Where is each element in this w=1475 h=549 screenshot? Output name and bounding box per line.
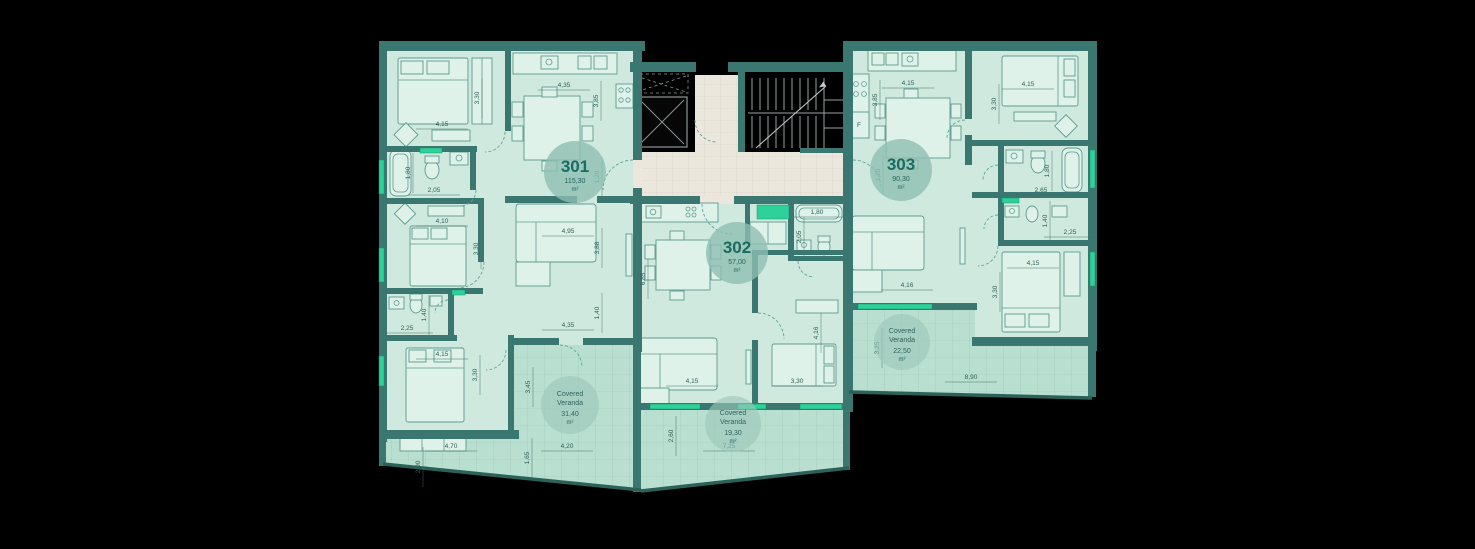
- dimension-label: 4,35: [558, 82, 571, 89]
- veranda-subtitle: Veranda: [557, 400, 583, 407]
- dimension-label: 4,15: [436, 121, 449, 128]
- apartment-area: 90,30: [892, 176, 910, 183]
- dimension-label: 3,88: [594, 241, 601, 254]
- fridge-label: F: [857, 122, 861, 129]
- veranda-badge-302: Covered Veranda 19,30 m²: [705, 396, 761, 452]
- dimension-label: 4,20: [561, 443, 574, 450]
- veranda-area: 31,40: [561, 411, 579, 418]
- dimension-label: 3,30: [473, 242, 480, 255]
- dimension-label: 3,30: [472, 368, 479, 381]
- apartment-number: 302: [723, 238, 751, 257]
- dimension-label: 2,25: [1064, 229, 1077, 236]
- veranda-badge-301: Covered Veranda 31,40 m²: [541, 376, 599, 434]
- apartment-area: 115,30: [565, 178, 586, 185]
- veranda-subtitle: Veranda: [720, 419, 746, 426]
- apartment-badge-303[interactable]: 303 90,30 m²: [870, 139, 932, 201]
- veranda-title: Covered: [557, 391, 584, 398]
- dimension-label: 3,45: [525, 380, 532, 393]
- dimension-label: 1,65: [524, 451, 531, 464]
- dimension-label: 4,10: [436, 218, 449, 225]
- dimension-label: 2,05: [428, 187, 441, 194]
- floorplan-svg: 4,153,304,353,851,802,051,204,103,304,95…: [0, 0, 1475, 549]
- veranda-badge-303: Covered Veranda 22,50 m²: [874, 314, 930, 370]
- dimension-label: 4,15: [686, 378, 699, 385]
- veranda-title: Covered: [720, 410, 747, 417]
- dimension-label: 4,15: [902, 80, 915, 87]
- apartment-number: 303: [887, 155, 915, 174]
- dimension-label: 3,30: [992, 285, 999, 298]
- dimension-label: 4,15: [1027, 260, 1040, 267]
- dimension-label: 3,30: [474, 91, 481, 104]
- dimension-label: 4,70: [445, 443, 458, 450]
- veranda-area-unit: m²: [899, 357, 906, 363]
- dimension-label: 2,60: [668, 429, 675, 442]
- dimension-label: 3,30: [991, 97, 998, 110]
- floorplan-canvas: 4,153,304,353,851,802,051,204,103,304,95…: [0, 0, 1475, 549]
- veranda-area: 19,30: [724, 430, 742, 437]
- veranda-title: Covered: [889, 328, 916, 335]
- veranda-area: 22,50: [893, 348, 911, 355]
- apartment-number: 301: [561, 157, 589, 176]
- dimension-label: 4,15: [436, 351, 449, 358]
- apartment-area-unit: m²: [734, 268, 741, 274]
- dimension-label: 4,16: [901, 282, 914, 289]
- dimension-label: 8,90: [965, 374, 978, 381]
- dimension-label: 1,40: [421, 308, 428, 321]
- dimension-label: 1,80: [811, 209, 824, 216]
- dimension-label: 1,40: [1042, 214, 1049, 227]
- dimension-label: 4,95: [562, 228, 575, 235]
- dimension-label: 1,80: [1044, 164, 1051, 177]
- dimension-label: 1,80: [405, 166, 412, 179]
- apartment-badge-301[interactable]: 301 115,30 m²: [544, 141, 606, 203]
- dimension-label: 3,30: [791, 378, 804, 385]
- dimension-label: 4,15: [1022, 81, 1035, 88]
- dimension-label: 2,05: [796, 230, 803, 243]
- dimension-label: 2,00: [415, 460, 422, 473]
- apartment-area-unit: m²: [898, 185, 905, 191]
- dimension-label: 2,25: [401, 325, 414, 332]
- veranda-area-unit: m²: [730, 439, 737, 445]
- apartment-badge-302[interactable]: 302 57,00 m²: [706, 222, 768, 284]
- dimension-label: 3,85: [872, 93, 879, 106]
- dimension-label: 6,85: [640, 272, 647, 285]
- dimension-label: 3,85: [593, 94, 600, 107]
- apartment-area-unit: m²: [572, 187, 579, 193]
- dimension-label: 4,16: [813, 326, 820, 339]
- veranda-area-unit: m²: [567, 420, 574, 426]
- veranda-subtitle: Veranda: [889, 337, 915, 344]
- dimension-label: 2,65: [1035, 187, 1048, 194]
- apartment-area: 57,00: [728, 259, 746, 266]
- dimension-label: 1,40: [594, 306, 601, 319]
- dimension-label: 4,35: [562, 322, 575, 329]
